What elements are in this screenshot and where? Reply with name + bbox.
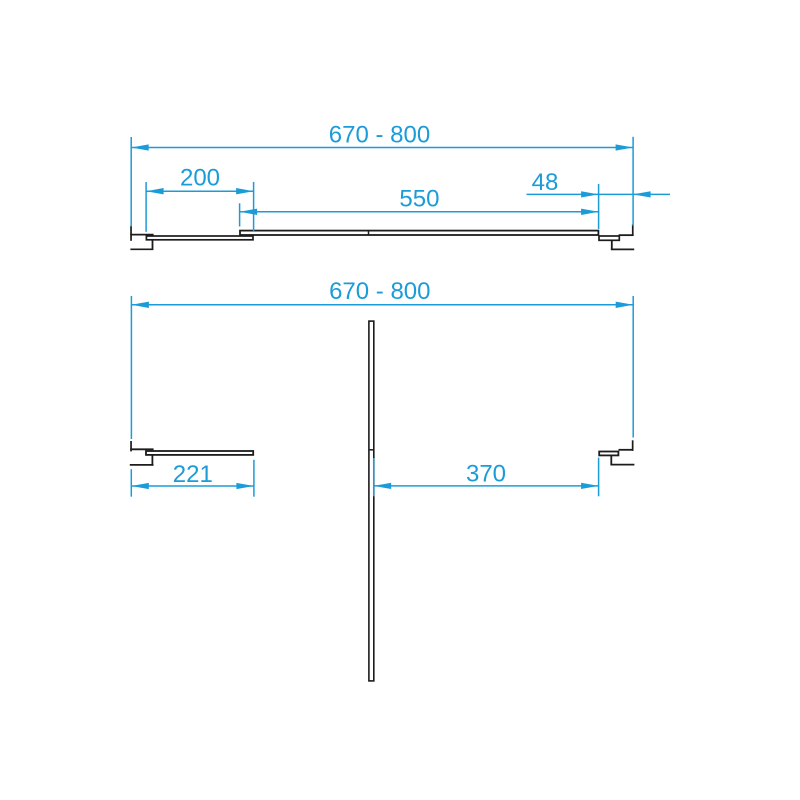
svg-text:550: 550 — [399, 185, 439, 212]
svg-text:200: 200 — [180, 165, 220, 192]
svg-text:48: 48 — [532, 169, 559, 196]
svg-text:670 - 800: 670 - 800 — [329, 122, 430, 149]
svg-text:370: 370 — [466, 460, 506, 487]
svg-text:221: 221 — [173, 461, 213, 488]
svg-text:670 - 800: 670 - 800 — [329, 278, 430, 305]
